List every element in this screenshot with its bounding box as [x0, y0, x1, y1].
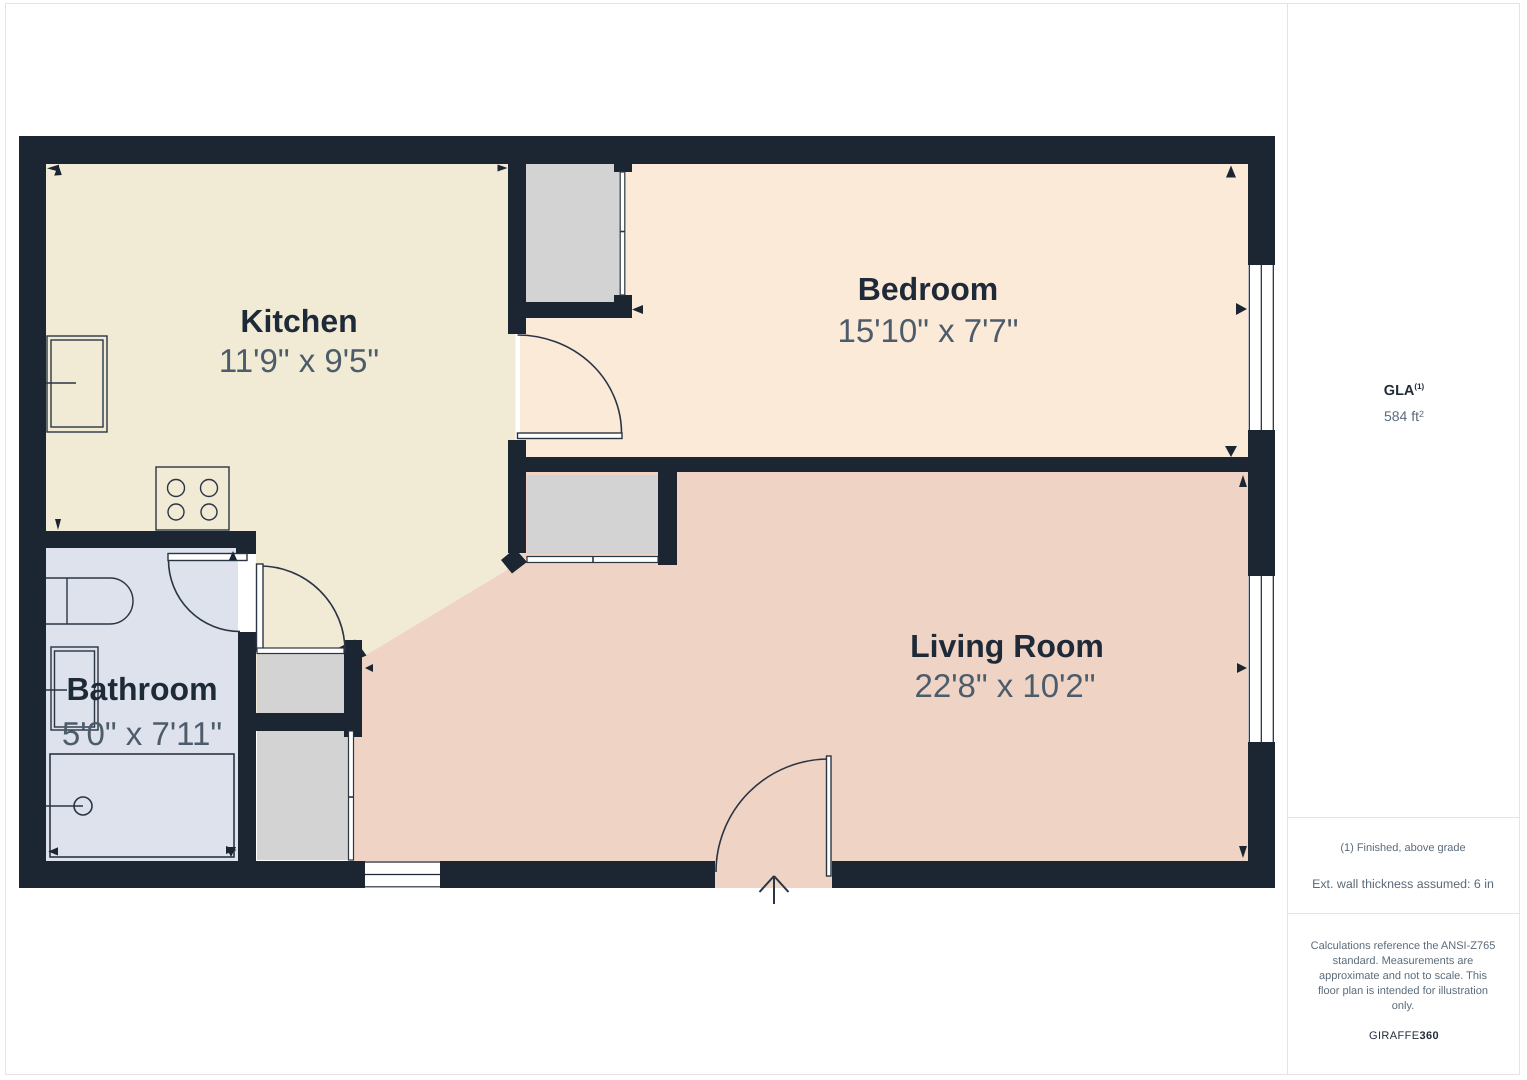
svg-text:approximate and not to scale.: approximate and not to scale. This: [1319, 970, 1487, 982]
svg-text:Kitchen: Kitchen: [240, 303, 357, 339]
svg-text:Bedroom: Bedroom: [858, 271, 998, 307]
svg-text:floor plan is intended for ill: floor plan is intended for illustration: [1318, 985, 1488, 997]
svg-text:Bathroom: Bathroom: [66, 671, 217, 707]
svg-text:GIRAFFE360: GIRAFFE360: [1369, 1030, 1439, 1042]
svg-text:(1) Finished, above grade: (1) Finished, above grade: [1340, 842, 1465, 854]
svg-text:Ext. wall thickness assumed: 6: Ext. wall thickness assumed: 6 in: [1312, 877, 1494, 891]
svg-text:22'8" x 10'2": 22'8" x 10'2": [915, 667, 1096, 704]
svg-text:standard. Measurements are: standard. Measurements are: [1333, 955, 1474, 967]
svg-text:11'9" x 9'5": 11'9" x 9'5": [219, 342, 379, 379]
svg-text:only.: only.: [1392, 1000, 1414, 1012]
svg-text:584 ft2: 584 ft2: [1384, 408, 1424, 424]
svg-text:15'10" x 7'7": 15'10" x 7'7": [838, 312, 1019, 349]
svg-text:5'0" x 7'11": 5'0" x 7'11": [62, 715, 222, 752]
svg-text:Calculations reference the ANS: Calculations reference the ANSI-Z765: [1311, 940, 1496, 952]
svg-text:Living Room: Living Room: [910, 628, 1104, 664]
